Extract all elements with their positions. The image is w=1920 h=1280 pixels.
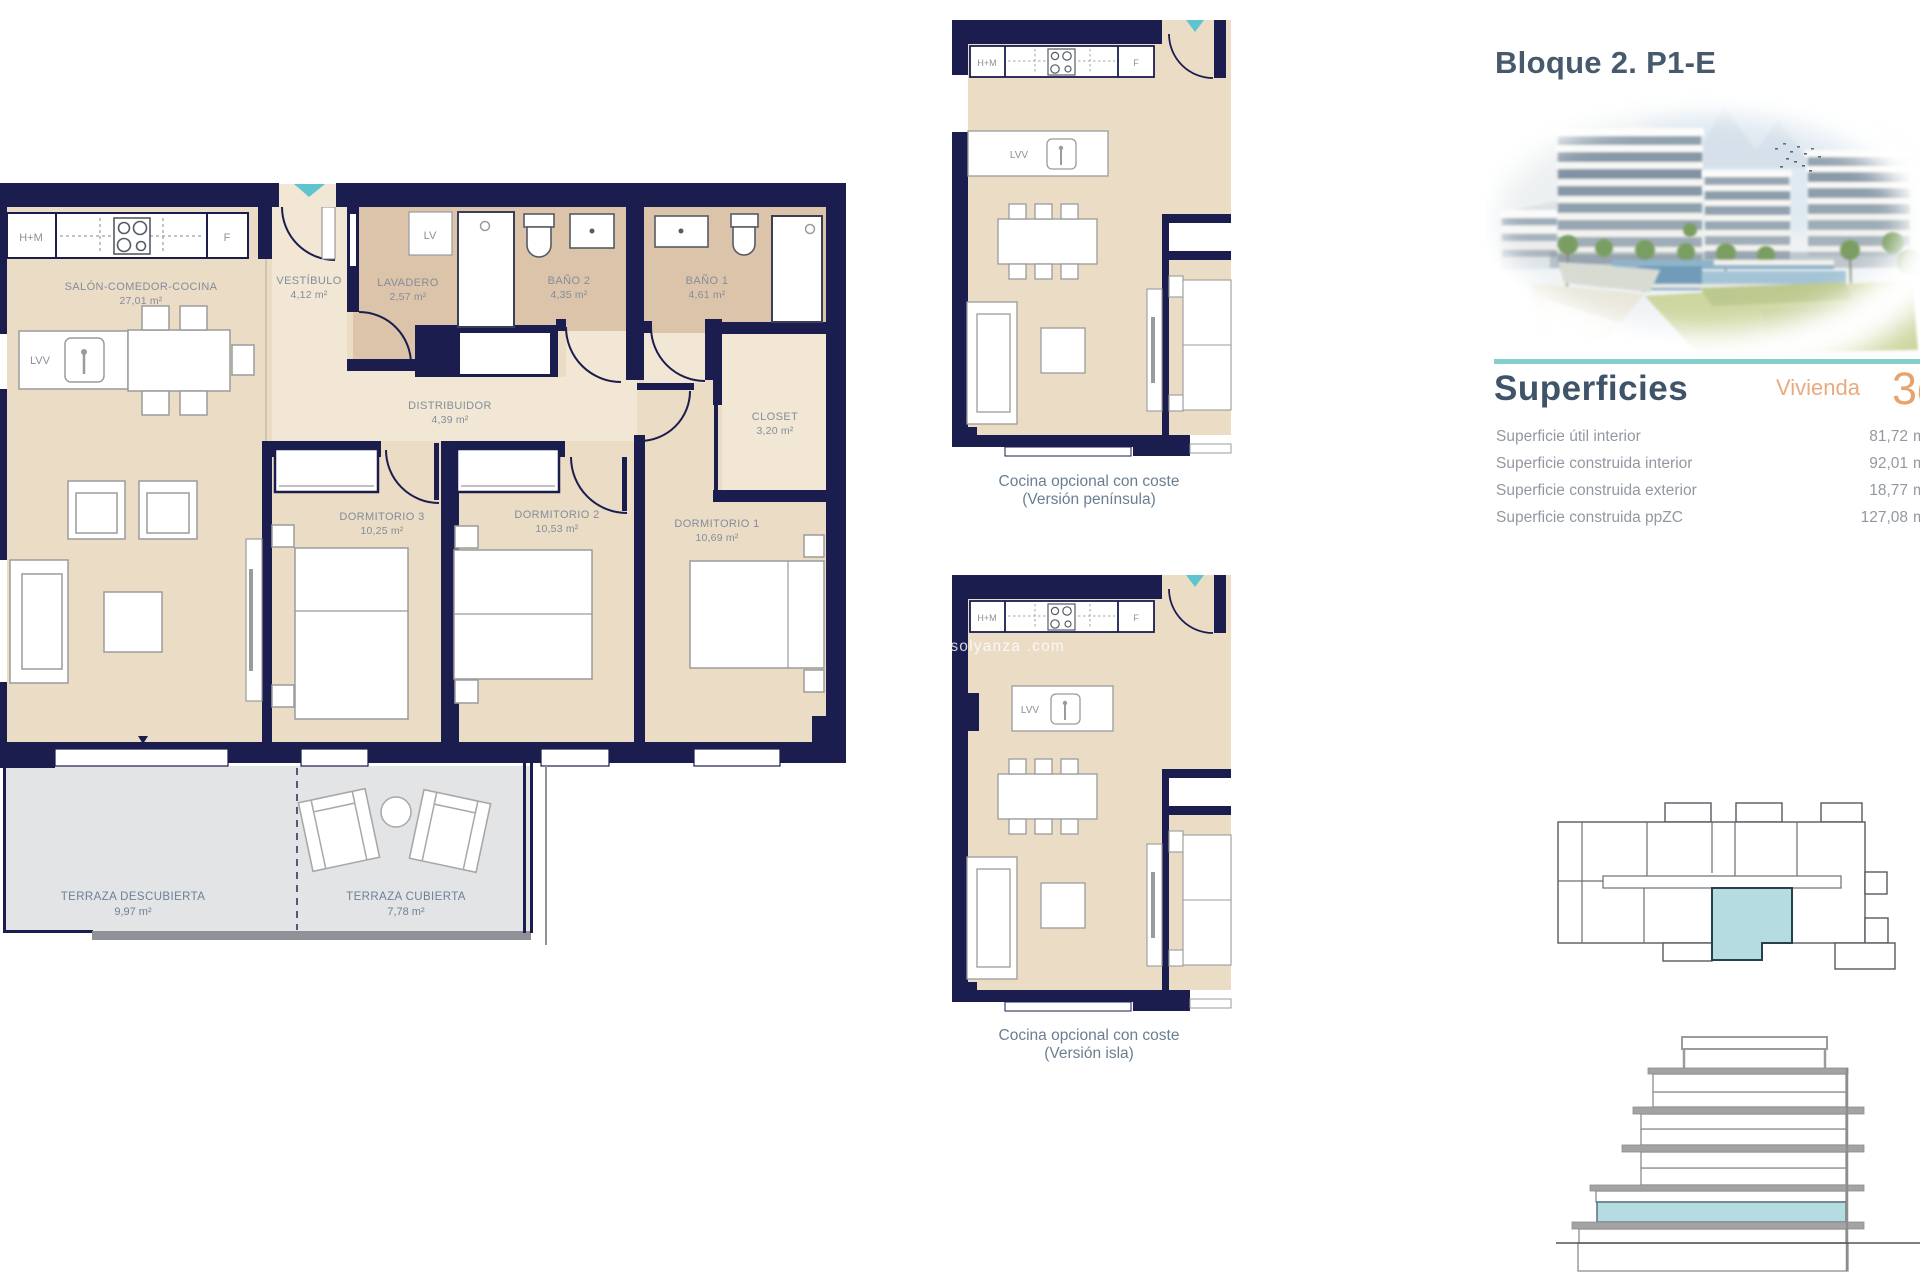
svg-text:4,39 m²: 4,39 m² [432, 414, 469, 426]
svg-text:DISTRIBUIDOR: DISTRIBUIDOR [408, 400, 492, 412]
svg-text:127,08: 127,08 [1861, 509, 1908, 526]
svg-text:3d: 3d [1892, 363, 1920, 414]
svg-text:LVV: LVV [30, 355, 51, 367]
svg-text:4,61 m²: 4,61 m² [689, 289, 726, 301]
svg-text:TERRAZA CUBIERTA: TERRAZA CUBIERTA [346, 891, 466, 903]
svg-text:m²: m² [1913, 509, 1920, 526]
svg-text:27,01 m²: 27,01 m² [119, 295, 162, 307]
svg-text:92,01: 92,01 [1869, 455, 1908, 472]
svg-text:Vivienda: Vivienda [1776, 375, 1861, 400]
svg-text:18,77: 18,77 [1869, 482, 1908, 499]
svg-text:4,35 m²: 4,35 m² [551, 289, 588, 301]
svg-text:Cocina opcional con coste: Cocina opcional con coste [999, 473, 1180, 490]
svg-text:H+M: H+M [19, 232, 43, 244]
svg-text:m²: m² [1913, 482, 1920, 499]
svg-text:Superficie construida exterior: Superficie construida exterior [1496, 482, 1697, 499]
svg-text:DORMITORIO 2: DORMITORIO 2 [514, 509, 599, 521]
svg-text:Bloque 2. P1-E: Bloque 2. P1-E [1495, 45, 1716, 80]
svg-text:BAÑO 1: BAÑO 1 [686, 274, 729, 287]
svg-text:10,25 m²: 10,25 m² [360, 525, 403, 537]
svg-text:Superficie construida ppZC: Superficie construida ppZC [1496, 509, 1683, 526]
svg-text:7,78 m²: 7,78 m² [387, 906, 425, 918]
svg-text:9,97 m²: 9,97 m² [114, 906, 152, 918]
svg-text:CLOSET: CLOSET [752, 411, 798, 423]
svg-text:81,72: 81,72 [1869, 428, 1908, 445]
svg-text:m²: m² [1913, 428, 1920, 445]
svg-text:F: F [224, 232, 231, 244]
svg-text:3,20 m²: 3,20 m² [757, 425, 794, 437]
svg-text:LVV: LVV [1021, 705, 1039, 716]
svg-text:SALÓN-COMEDOR-COCINA: SALÓN-COMEDOR-COCINA [65, 280, 218, 293]
svg-text:10,53 m²: 10,53 m² [535, 523, 578, 535]
svg-text:BAÑO 2: BAÑO 2 [548, 274, 591, 287]
svg-text:10,69 m²: 10,69 m² [695, 532, 738, 544]
svg-text:2,57 m²: 2,57 m² [390, 291, 427, 303]
svg-text:DORMITORIO 3: DORMITORIO 3 [339, 511, 424, 523]
svg-text:4,12 m²: 4,12 m² [291, 289, 328, 301]
svg-text:DORMITORIO 1: DORMITORIO 1 [674, 518, 759, 530]
svg-text:LV: LV [424, 230, 437, 242]
svg-text:Cocina opcional con coste: Cocina opcional con coste [999, 1027, 1180, 1044]
svg-text:Superficie construida interior: Superficie construida interior [1496, 455, 1692, 472]
svg-text:VESTÍBULO: VESTÍBULO [276, 274, 341, 287]
svg-text:LAVADERO: LAVADERO [377, 277, 439, 289]
svg-text:-solyanza .com: -solyanza .com [944, 638, 1065, 655]
svg-text:(Versión península): (Versión península) [1022, 491, 1156, 508]
svg-text:Superficie útil interior: Superficie útil interior [1496, 428, 1641, 445]
svg-text:LVV: LVV [1010, 150, 1028, 161]
svg-text:Superficies: Superficies [1494, 369, 1688, 408]
svg-text:TERRAZA DESCUBIERTA: TERRAZA DESCUBIERTA [61, 891, 206, 903]
svg-text:m²: m² [1913, 455, 1920, 472]
svg-text:(Versión isla): (Versión isla) [1044, 1045, 1134, 1062]
